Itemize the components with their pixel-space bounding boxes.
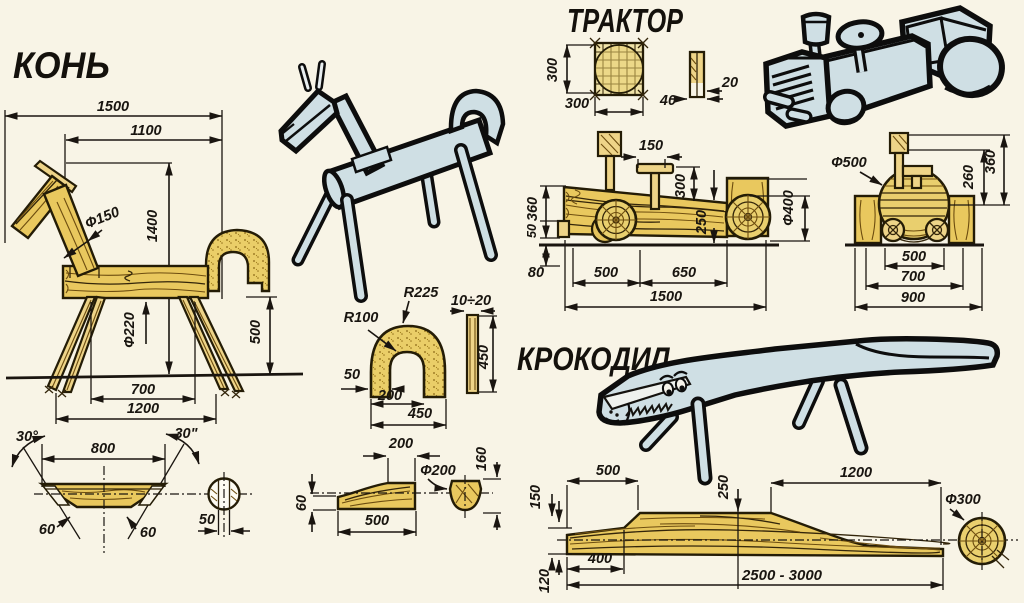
svg-text:Ф220: Ф220 — [122, 312, 138, 348]
svg-text:20: 20 — [721, 75, 738, 91]
svg-text:360: 360 — [983, 150, 999, 174]
svg-text:250: 250 — [694, 210, 710, 235]
svg-text:300: 300 — [673, 174, 689, 198]
svg-text:260: 260 — [961, 165, 977, 190]
svg-text:150: 150 — [528, 485, 544, 509]
svg-text:1200: 1200 — [840, 465, 872, 481]
svg-text:300: 300 — [565, 96, 589, 112]
svg-text:Ф200: Ф200 — [420, 463, 456, 479]
svg-text:60: 60 — [294, 495, 310, 511]
svg-text:700: 700 — [901, 269, 925, 285]
svg-text:50: 50 — [199, 512, 215, 528]
svg-text:500: 500 — [248, 320, 264, 344]
svg-text:500: 500 — [596, 463, 620, 479]
svg-text:160: 160 — [474, 447, 490, 471]
svg-text:120: 120 — [537, 569, 553, 593]
svg-text:500: 500 — [594, 265, 618, 281]
svg-text:1400: 1400 — [145, 210, 161, 242]
svg-text:Ф400: Ф400 — [781, 190, 797, 226]
svg-text:800: 800 — [91, 441, 115, 457]
svg-text:40: 40 — [659, 93, 676, 109]
svg-text:650: 650 — [672, 265, 696, 281]
svg-text:60: 60 — [140, 525, 156, 541]
svg-text:КОНЬ: КОНЬ — [13, 44, 110, 86]
svg-text:150: 150 — [639, 138, 663, 154]
svg-text:450: 450 — [476, 345, 492, 370]
svg-text:500: 500 — [902, 249, 926, 265]
svg-text:80: 80 — [528, 265, 544, 281]
svg-text:900: 900 — [901, 290, 925, 306]
svg-text:R225: R225 — [404, 285, 440, 301]
svg-text:300: 300 — [545, 58, 561, 82]
svg-text:2500 - 3000: 2500 - 3000 — [741, 567, 823, 584]
svg-text:Ф300: Ф300 — [945, 492, 981, 508]
svg-text:50: 50 — [525, 224, 539, 238]
svg-text:30°: 30° — [16, 429, 38, 445]
svg-text:ТРАКТОР: ТРАКТОР — [567, 2, 684, 39]
svg-text:250: 250 — [716, 475, 732, 500]
svg-text:200: 200 — [377, 388, 402, 404]
svg-text:10÷20: 10÷20 — [451, 293, 491, 309]
svg-text:Ф500: Ф500 — [831, 155, 867, 171]
svg-text:60: 60 — [39, 522, 55, 538]
svg-text:R100: R100 — [344, 310, 379, 326]
svg-text:400: 400 — [587, 551, 612, 567]
svg-text:200: 200 — [388, 436, 413, 452]
svg-text:1100: 1100 — [130, 123, 161, 139]
svg-text:1500: 1500 — [650, 289, 682, 305]
svg-text:1500: 1500 — [97, 99, 129, 115]
svg-text:30": 30" — [174, 426, 198, 442]
svg-text:500: 500 — [365, 513, 389, 529]
svg-text:1200: 1200 — [127, 401, 159, 417]
svg-text:450: 450 — [407, 406, 432, 422]
svg-text:700: 700 — [131, 382, 155, 398]
svg-text:50: 50 — [344, 367, 360, 383]
svg-text:360: 360 — [525, 197, 541, 221]
